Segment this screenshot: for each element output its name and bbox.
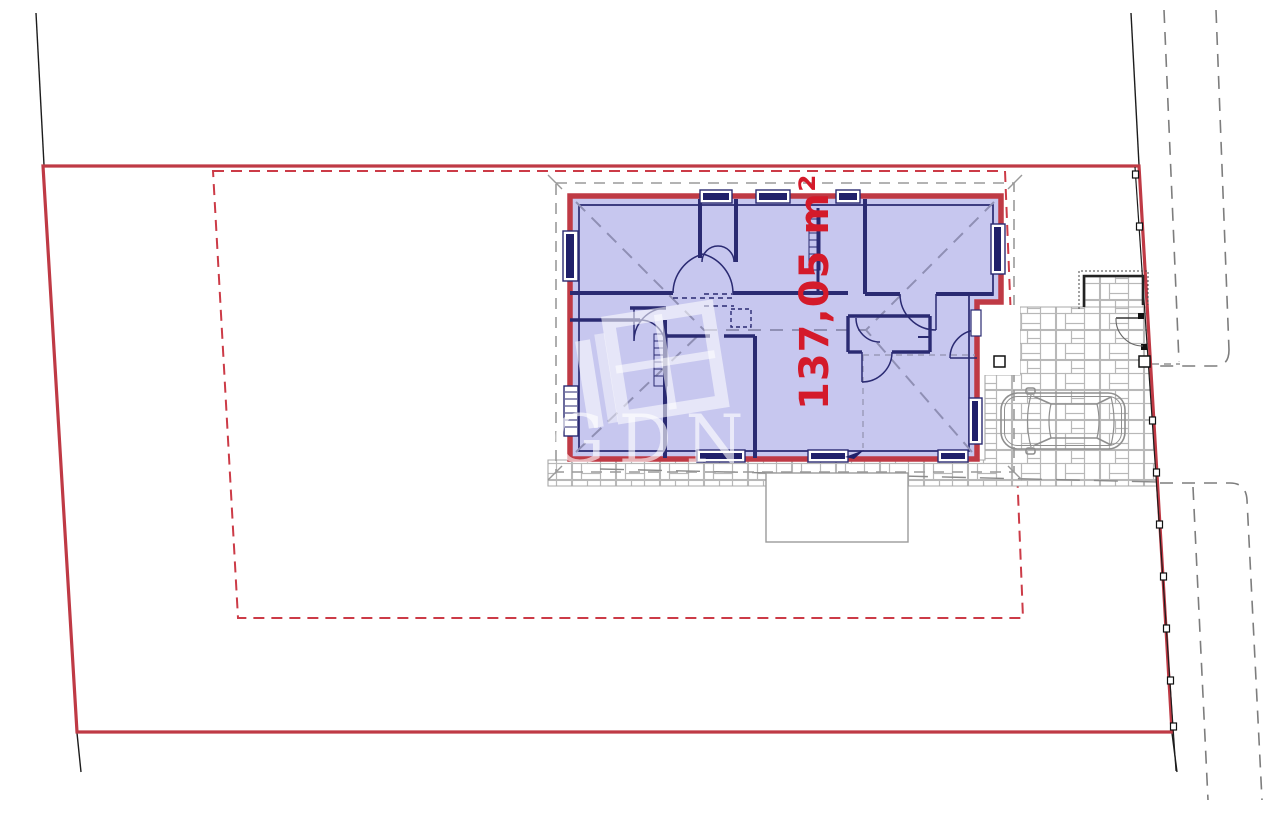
terrace: [766, 473, 908, 542]
area-label: 137,05 m²: [792, 174, 838, 410]
site-plan-canvas: GDN 137,05 m²: [0, 0, 1280, 817]
site-plan-drawing: GDN 137,05 m²: [0, 0, 1280, 817]
gate-paving-patch: [1085, 277, 1143, 307]
watermark-text: GDN: [552, 401, 757, 478]
porch-post: [994, 356, 1005, 367]
gate-post: [1139, 356, 1150, 367]
